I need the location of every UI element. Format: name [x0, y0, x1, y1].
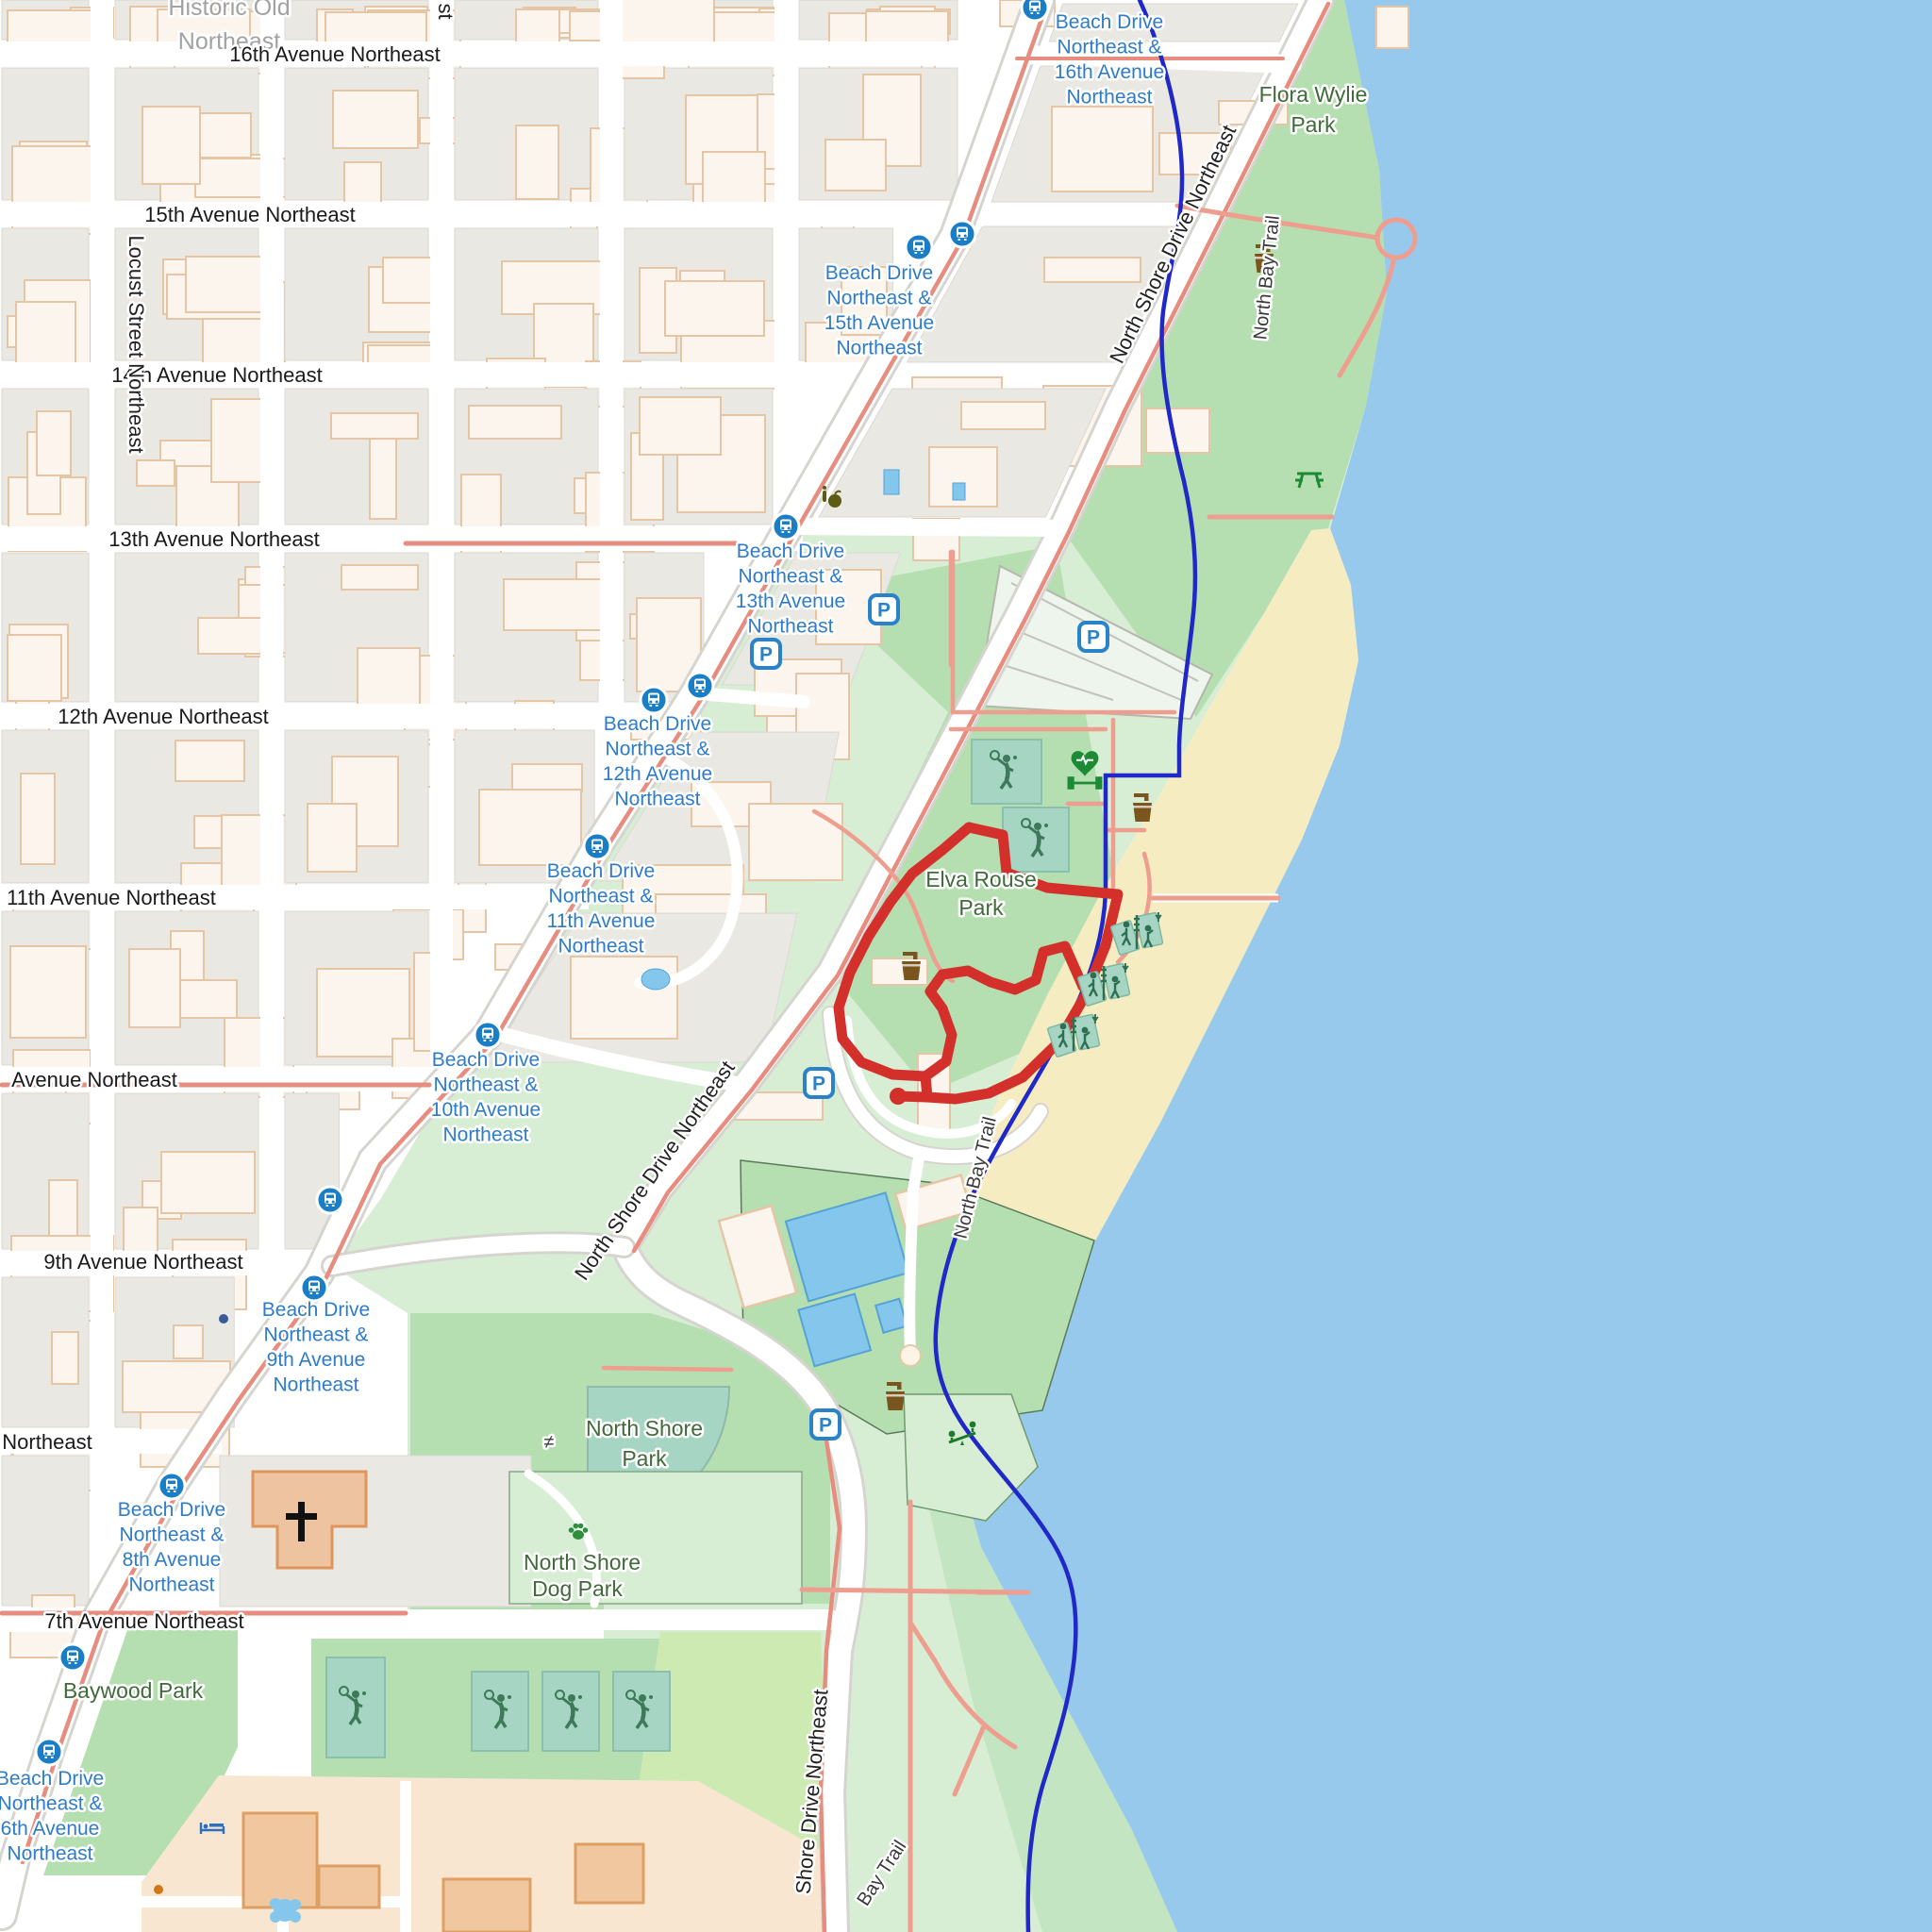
building [331, 413, 418, 439]
building [142, 107, 200, 184]
street-label-locust: Locust Street Northeast [125, 235, 148, 453]
building [333, 91, 418, 148]
bus-stop-label: 13th Avenue [736, 591, 845, 612]
bus-stop-label: 12th Avenue [603, 763, 712, 785]
building [825, 140, 886, 191]
bus-stop-label: Northeast [747, 616, 833, 638]
park-label-dog: North Shore [524, 1550, 641, 1574]
building [137, 460, 175, 486]
bus-stop-label: Northeast & [1058, 37, 1162, 58]
building [186, 257, 268, 312]
poi-dot [154, 1885, 163, 1894]
building [749, 804, 842, 880]
bus-stop-icon[interactable] [475, 1022, 501, 1048]
building [174, 1325, 203, 1358]
bus-stop-icon[interactable] [641, 687, 667, 713]
street-label-16th: 16th Avenue Northeast [229, 42, 440, 66]
park-label-north-shore: Park [622, 1446, 667, 1471]
parking-icon[interactable] [811, 1410, 840, 1439]
bus-stop-label: Northeast & [120, 1524, 225, 1546]
building [961, 402, 1045, 429]
bus-stop-label: 16th Avenue [1055, 61, 1164, 83]
bus-stop-label: 6th Avenue [1, 1818, 100, 1840]
park-label-flora: Park [1291, 112, 1336, 137]
bus-stop-label: Northeast & [549, 886, 654, 908]
poi-dot [219, 1314, 228, 1324]
swimming-pool [884, 470, 899, 494]
bus-stop-label: Beach Drive [737, 541, 844, 562]
building [129, 949, 180, 1027]
street-label-11th: 11th Avenue Northeast [7, 886, 216, 909]
bus-stop-icon[interactable] [158, 1473, 185, 1499]
park-label-north-shore: North Shore [586, 1416, 703, 1441]
park-label-baywood: Baywood Park [63, 1678, 204, 1703]
bus-stop-label: Northeast [273, 1374, 358, 1396]
bus-stop-label: Beach Drive [118, 1499, 225, 1521]
street-label-7th: 7th Avenue Northeast [44, 1609, 243, 1633]
street-label-10th: Avenue Northeast [11, 1068, 177, 1091]
bus-stop-icon[interactable] [1022, 0, 1048, 21]
building [211, 399, 261, 482]
bus-stop-icon[interactable] [59, 1644, 86, 1671]
building [344, 162, 381, 205]
building [640, 397, 721, 455]
city-block [2, 1456, 89, 1606]
bus-stop-label: Beach Drive [432, 1049, 540, 1071]
building [1044, 258, 1141, 282]
bus-stop-label: Beach Drive [262, 1299, 370, 1321]
bus-stop-label: Northeast & [606, 739, 710, 760]
district-label: Historic Old [168, 0, 290, 21]
building [571, 957, 677, 1039]
bus-stop-label: Beach Drive [604, 713, 711, 735]
building [341, 565, 418, 590]
bus-stop-icon[interactable] [949, 221, 975, 247]
city-block [285, 389, 428, 525]
bus-stop-label: 8th Avenue [123, 1549, 222, 1571]
bus-stop-icon[interactable] [773, 513, 799, 540]
bus-stop-label: Northeast [7, 1843, 92, 1865]
building [21, 774, 55, 864]
building [1052, 107, 1153, 192]
bus-stop-label: Beach Drive [1056, 11, 1163, 33]
building [504, 579, 608, 630]
parking-icon[interactable] [752, 640, 780, 668]
building [52, 1332, 78, 1384]
bus-stop-label: Beach Drive [825, 262, 933, 284]
bus-stop-label: Northeast & [0, 1793, 102, 1815]
park-label-dog: Dog Park [532, 1576, 623, 1601]
building [469, 406, 561, 439]
bus-stop-icon[interactable] [906, 234, 932, 260]
building [37, 411, 71, 475]
bus-stop-label: 10th Avenue [431, 1099, 541, 1121]
bus-stop-icon[interactable] [584, 833, 610, 859]
building [1376, 7, 1408, 48]
bus-stop-label: Northeast & [827, 288, 932, 309]
parking-icon[interactable] [870, 595, 898, 624]
park-label-flora: Flora Wylie [1259, 82, 1368, 107]
bus-stop-label: Northeast [442, 1124, 528, 1146]
bus-stop-icon[interactable] [687, 673, 713, 699]
building [570, 11, 605, 41]
building [175, 741, 244, 781]
building [613, 0, 714, 42]
parking-icon[interactable] [1079, 623, 1108, 651]
bus-stop-label: Northeast [558, 936, 643, 958]
street-label-9th: 9th Avenue Northeast [43, 1250, 242, 1274]
building [479, 790, 581, 865]
bus-stop-label: Northeast & [434, 1074, 539, 1096]
park-label-elva: Elva Rouse [925, 867, 1037, 891]
building [516, 125, 558, 199]
street-label-15th: 15th Avenue Northeast [144, 203, 355, 226]
map-canvas[interactable]: P [0, 0, 1932, 1932]
park-label-elva: Park [958, 895, 1004, 920]
church-parcel [220, 1456, 531, 1607]
building [665, 281, 764, 336]
building [161, 1152, 255, 1213]
building [512, 764, 582, 791]
street-label-12th: 12th Avenue Northeast [58, 705, 268, 728]
swimming-pool [953, 483, 965, 500]
school-area [142, 1775, 823, 1932]
street-label-fragment: st [434, 3, 458, 19]
route-endpoint [890, 1088, 907, 1105]
bus-stop-icon[interactable] [317, 1187, 343, 1213]
bus-stop-label: Northeast [614, 789, 700, 810]
bus-stop-label: Beach Drive [0, 1768, 104, 1790]
bus-stop-label: 9th Avenue [267, 1349, 366, 1371]
bus-stop-icon[interactable] [36, 1739, 62, 1765]
bus-stop-label: Northeast [1066, 87, 1152, 108]
bus-stop-label: 15th Avenue [824, 312, 934, 334]
gate-symbol: ≠ [544, 1432, 555, 1453]
bus-stop-label: Northeast [128, 1574, 214, 1596]
parking-icon[interactable] [805, 1069, 833, 1097]
street-label-13th: 13th Avenue Northeast [108, 527, 319, 551]
building [308, 804, 357, 872]
building [8, 635, 61, 701]
building [10, 946, 86, 1038]
street-label-8th: Northeast [2, 1430, 92, 1454]
bus-stop-label: Northeast & [739, 566, 843, 588]
bus-stop-label: 11th Avenue [547, 910, 656, 932]
bus-stop-label: Beach Drive [547, 860, 655, 882]
pond [641, 969, 670, 990]
building [198, 618, 267, 654]
bus-stop-label: Northeast & [264, 1324, 369, 1346]
bus-stop-label: Northeast [836, 338, 922, 359]
bus-stop-icon[interactable] [301, 1274, 327, 1301]
